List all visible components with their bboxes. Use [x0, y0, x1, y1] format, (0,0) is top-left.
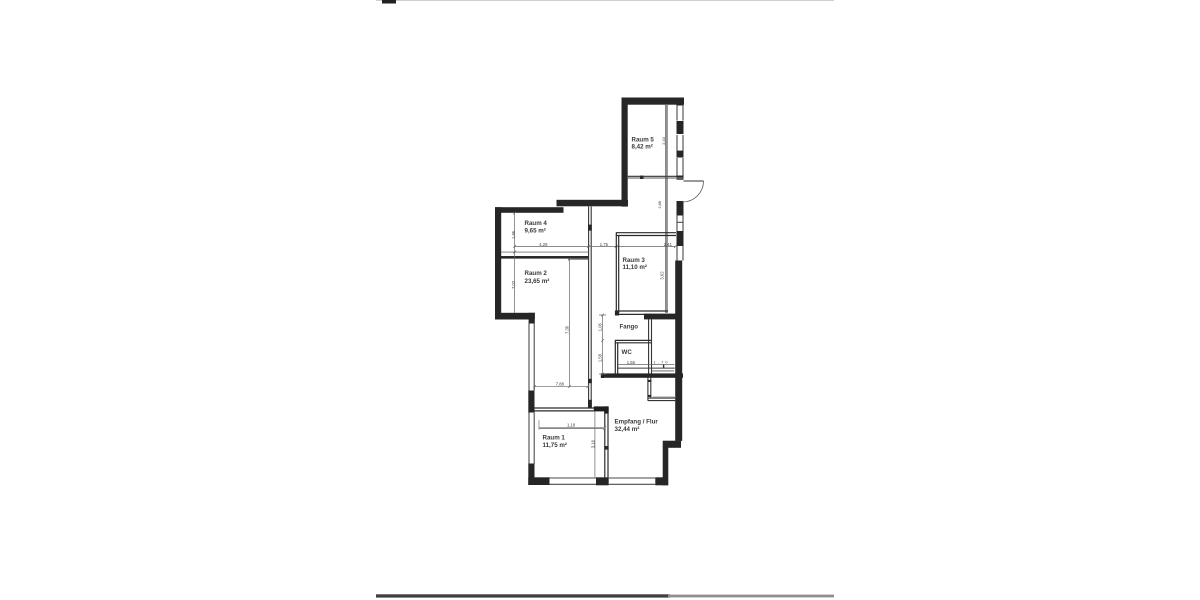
svg-text:Fango: Fango	[620, 323, 639, 330]
svg-text:7,02: 7,02	[511, 280, 516, 289]
svg-text:4,29: 4,29	[539, 242, 548, 247]
svg-text:WC: WC	[622, 349, 633, 356]
svg-text:1,70: 1,70	[654, 361, 670, 365]
svg-text:11,75 m²: 11,75 m²	[543, 442, 567, 449]
svg-text:2,88: 2,88	[658, 201, 662, 208]
svg-text:9,65 m²: 9,65 m²	[525, 228, 546, 235]
svg-text:1,06: 1,06	[597, 322, 602, 331]
svg-text:1,58: 1,58	[597, 353, 602, 362]
svg-text:2,41: 2,41	[664, 242, 673, 247]
svg-text:Empfang / Flur: Empfang / Flur	[615, 418, 659, 425]
svg-text:8,42 m²: 8,42 m²	[632, 144, 653, 151]
svg-text:23,65 m²: 23,65 m²	[525, 278, 550, 285]
svg-text:Raum 1: Raum 1	[543, 434, 566, 441]
svg-text:1,96: 1,96	[511, 230, 516, 239]
svg-text:Raum 4: Raum 4	[525, 220, 548, 227]
svg-text:3,16: 3,16	[590, 439, 595, 448]
svg-text:Raum 3: Raum 3	[623, 257, 646, 264]
svg-text:Raum 2: Raum 2	[525, 270, 548, 277]
svg-text:7,88: 7,88	[556, 382, 565, 387]
svg-text:3,62: 3,62	[660, 271, 665, 280]
svg-text:7,36: 7,36	[564, 325, 569, 334]
svg-text:11,10 m²: 11,10 m²	[623, 264, 647, 271]
svg-text:1,75: 1,75	[600, 242, 609, 247]
svg-text:1,56: 1,56	[627, 360, 636, 365]
svg-text:Raum 5: Raum 5	[632, 137, 655, 144]
svg-text:2,43: 2,43	[661, 136, 666, 145]
svg-text:1,18: 1,18	[567, 422, 576, 427]
svg-text:32,44 m²: 32,44 m²	[615, 426, 640, 433]
